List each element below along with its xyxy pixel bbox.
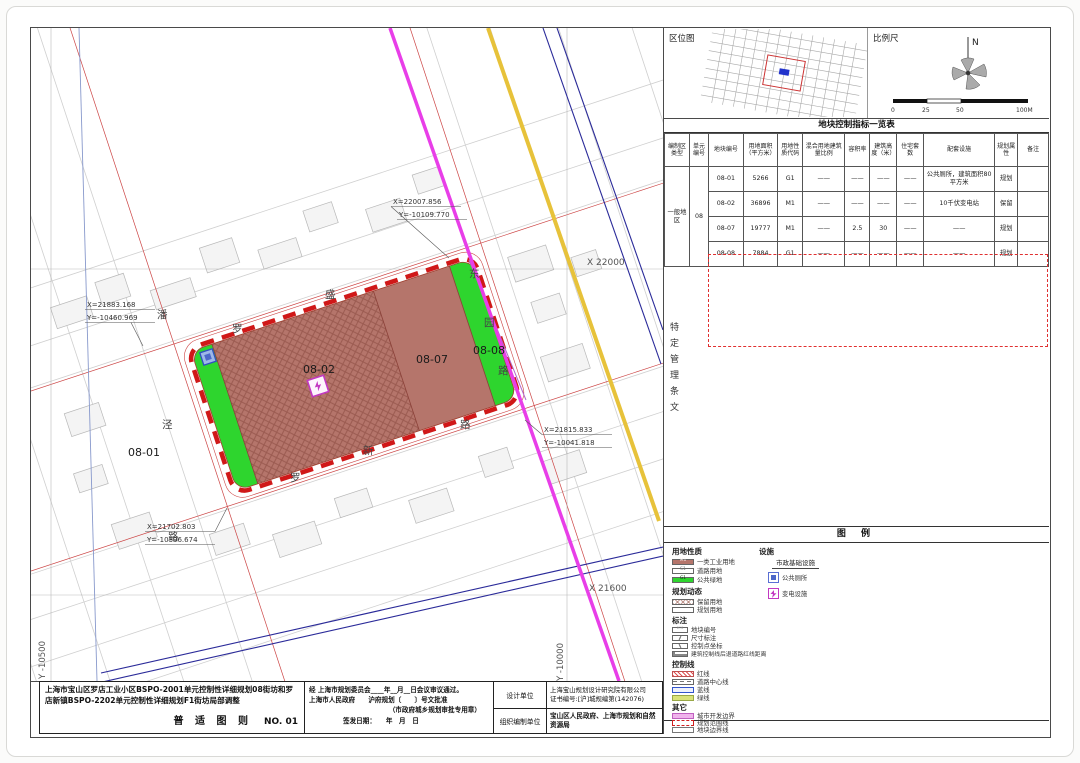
scale-bar: 0 25 50 100M	[891, 99, 1033, 114]
designer-row: 设计单位 上海宝山规划设计研究院有限公司 证书编号:[沪]城规编第(142076…	[494, 682, 662, 709]
svg-text:Y=-10041.818: Y=-10041.818	[543, 439, 595, 447]
green-line-swatch	[672, 695, 694, 701]
sheet-number: NO. 01	[264, 716, 298, 729]
svg-text:Y=-10396.674: Y=-10396.674	[146, 536, 198, 544]
setback-icon	[672, 651, 688, 657]
project-title: 上海市宝山区罗店工业小区BSPO-2001单元控制性详细规划08街坊和罗店新镇B…	[45, 685, 293, 705]
legend-item: 公共厕所	[768, 572, 807, 583]
provisions-section: 特定管理条文	[664, 256, 1049, 526]
road-name-left-char: 潘	[157, 309, 168, 321]
table-row: 一般地区 08 08-015266 G1—— ———— ——公共厕所，建筑面积8…	[665, 167, 1049, 192]
indicator-table: 编制区类型单元编号 地块编号用地面积（平方米） 用地性质代码混合用地建筑量比例 …	[664, 133, 1049, 267]
location-inset-map	[664, 29, 867, 117]
road-name-right-char: 东	[469, 267, 480, 280]
legend-item: 变电设施	[768, 588, 807, 599]
titleblock-approval: 经 上海市规划委员会____年__月__日会议审议通过。 上海市人民政府 沪府规…	[304, 681, 494, 734]
industrial-swatch: M1	[672, 559, 694, 565]
indicator-table-section: 地块控制指标一览表 编制区类型单元编号 地块编号用地面积（平方米） 用地性质代码…	[664, 118, 1049, 267]
parcel-label-08-01: 08-01	[128, 446, 160, 459]
svg-text:Y=-10109.770: Y=-10109.770	[398, 211, 450, 219]
legend-title: 图 例	[664, 527, 1049, 543]
approval-line: 上海市人民政府 沪府规划〔 〕号文批准	[309, 695, 489, 705]
legend-section-dynamics: 规划动态	[672, 586, 702, 597]
retained-land-swatch	[672, 599, 694, 605]
organizer-row: 组织编制单位 宝山区人民政府、上海市规划和自然资源局	[494, 709, 662, 733]
block-boundary-swatch	[672, 727, 694, 733]
svg-text:0: 0	[891, 107, 895, 114]
legend-section-landuse: 用地性质	[672, 546, 702, 557]
legend-item: M1 一类工业用地	[672, 557, 735, 566]
parcel-label-08-08: 08-08	[473, 344, 505, 357]
north-arrow-and-scalebar: N 0 25	[868, 29, 1049, 117]
inset-row: 区位图	[664, 28, 1049, 119]
legend-item: 规划用地	[672, 605, 722, 614]
indicator-table-title: 地块控制指标一览表	[664, 118, 1049, 133]
unit-no-cell: 08	[689, 167, 708, 267]
designer-certificate: 证书编号:[沪]城规编第(142076)	[550, 695, 662, 704]
dimension-icon	[672, 635, 688, 641]
sheet-name: 普 适 图 则	[174, 715, 252, 729]
parcel-label-08-07: 08-07	[416, 353, 448, 366]
legend-item: S1 道路用地	[672, 566, 722, 575]
north-label: N	[972, 38, 979, 48]
grid-label-y-right: Y -10000	[556, 643, 566, 682]
grid-label-y-left: Y -10500	[38, 641, 48, 680]
compass-rose-icon	[952, 58, 986, 89]
legend-item: 绿线	[672, 693, 710, 702]
legend-section-facilities: 设施	[759, 546, 774, 557]
legend-item: 建筑控制线后退道路红线距离	[672, 649, 766, 658]
designer-name: 上海宝山规划设计研究院有限公司	[550, 686, 662, 695]
approval-line: 经 上海市规划委员会____年__月__日会议审议通过。	[309, 685, 489, 695]
inset-site-marker	[779, 68, 790, 76]
road-name-top-char: 盛	[325, 288, 336, 301]
designer-label: 设计单位	[494, 682, 547, 708]
table-row: 08-0236896 M1—— ———— ——10千伏变电站 保留	[665, 192, 1049, 217]
planning-area	[180, 248, 529, 503]
green-land-swatch: G1	[672, 577, 694, 583]
svg-text:X=21815.833: X=21815.833	[544, 426, 593, 434]
titleblock-project: 上海市宝山区罗店工业小区BSPO-2001单元控制性详细规划08街坊和罗店新镇B…	[39, 681, 305, 734]
control-point-icon	[672, 643, 688, 649]
table-row: 08-0719777 M1—— 2.530 ———— 规划	[665, 217, 1049, 242]
plan-sheet: X 22000 X 21600 Y -10500 Y -10000	[30, 27, 1051, 738]
legend-item: 地块边界线	[672, 725, 728, 734]
approval-line: （市政府城乡规划审批专用章）	[309, 705, 489, 715]
plot-number-icon: ××	[672, 627, 688, 633]
coordinate-callout: X=21815.833 Y=-10041.818	[525, 420, 612, 448]
scalebar-cell: 比例尺 N	[868, 28, 1049, 118]
svg-text:Y=-10460.969: Y=-10460.969	[86, 314, 138, 322]
road-name-right-char: 园	[484, 317, 495, 329]
screenshot-canvas: X 22000 X 21600 Y -10500 Y -10000	[0, 0, 1080, 763]
svg-text:25: 25	[922, 107, 930, 114]
svg-text:X=21883.168: X=21883.168	[87, 301, 136, 309]
svg-text:50: 50	[956, 107, 964, 114]
approval-line: 签发日期： 年 月 日	[309, 716, 489, 726]
road-land-swatch: S1	[672, 568, 694, 574]
organizer-name: 宝山区人民政府、上海市规划和自然资源局	[547, 709, 662, 733]
facilities-group-header: 市政基础设施	[772, 557, 819, 569]
parcel-label-08-02: 08-02	[303, 363, 335, 376]
road-name-top-char: 罗	[232, 323, 243, 335]
svg-text:X=22007.856: X=22007.856	[393, 198, 442, 206]
grid-label-x-bottom: X 21600	[589, 584, 627, 594]
blue-line-swatch	[672, 687, 694, 693]
road-name-bottom-char: 新	[363, 444, 374, 457]
grid-label-x-top: X 22000	[587, 258, 625, 268]
blue-road-line	[79, 28, 97, 681]
legend-item: G1 公共绿地	[672, 575, 722, 584]
provisions-title: 特定管理条文	[667, 322, 680, 418]
table-header-row: 编制区类型单元编号 地块编号用地面积（平方米） 用地性质代码混合用地建筑量比例 …	[665, 134, 1049, 167]
location-inset: 区位图	[664, 28, 868, 118]
right-panel: 区位图	[663, 28, 1049, 734]
organizer-label: 组织编制单位	[494, 709, 547, 733]
public-toilet-legend-icon	[768, 572, 779, 583]
svg-text:X=21702.803: X=21702.803	[147, 523, 196, 531]
titleblock-credits: 设计单位 上海宝山规划设计研究院有限公司 证书编号:[沪]城规编第(142076…	[493, 681, 663, 734]
road-centerline-swatch	[672, 679, 694, 685]
planning-map: X 22000 X 21600 Y -10500 Y -10000	[31, 28, 663, 682]
legend-panel: 图 例 用地性质 M1 一类工业用地 S1 道路用地 G1 公共绿地	[664, 526, 1049, 721]
red-line-swatch	[672, 671, 694, 677]
svg-text:100M: 100M	[1016, 107, 1033, 114]
area-type-cell: 一般地区	[665, 167, 690, 267]
road-name-right-char: 路	[498, 364, 509, 377]
substation-legend-icon	[768, 588, 779, 599]
planned-land-swatch	[672, 607, 694, 613]
road-name-left-char: 泾	[162, 418, 173, 431]
coordinate-callout: X=21883.168 Y=-10460.969	[85, 301, 155, 346]
road-name-bottom-char: 罗	[290, 472, 301, 484]
road-name-bottom-char: 路	[460, 418, 471, 431]
